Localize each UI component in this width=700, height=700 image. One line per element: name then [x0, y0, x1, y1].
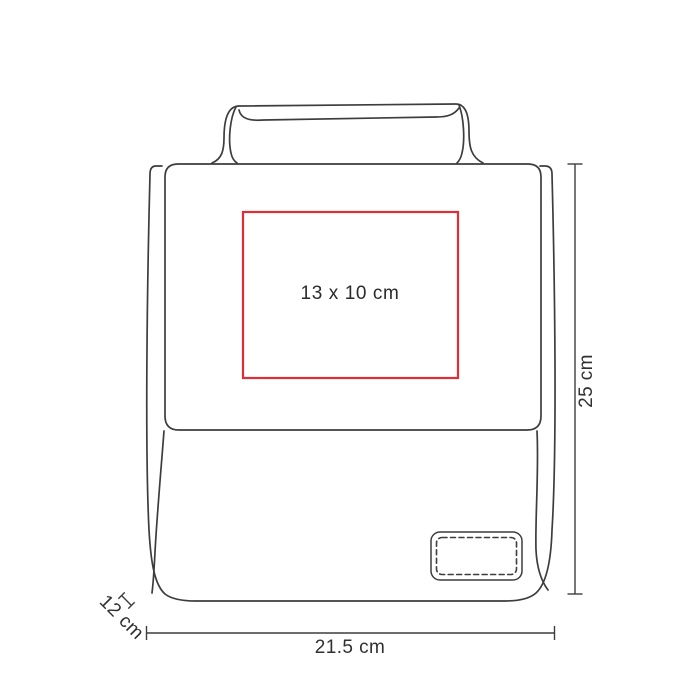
bag-handle-outline: [212, 104, 483, 163]
bag-handle-right-fold: [457, 105, 464, 163]
height-dimension-label: 25 cm: [576, 354, 598, 408]
bag-body-outline: [147, 166, 555, 601]
dimension-lines: [118, 164, 582, 640]
imprint-area-label: 13 x 10 cm: [301, 283, 400, 305]
bag-drawing: [147, 104, 555, 601]
bag-handle-left-fold: [230, 107, 237, 163]
bag-patch-stitching: [437, 538, 517, 575]
product-diagram-canvas: 13 x 10 cm 25 cm 21.5 cm 12 cm: [0, 0, 700, 700]
bag-patch-outline: [431, 532, 522, 580]
bag-handle-inner-line: [239, 108, 459, 120]
bag-front-left-edge: [152, 431, 164, 593]
bag-front-right-edge: [536, 431, 548, 590]
width-dimension-label: 21.5 cm: [315, 637, 385, 659]
